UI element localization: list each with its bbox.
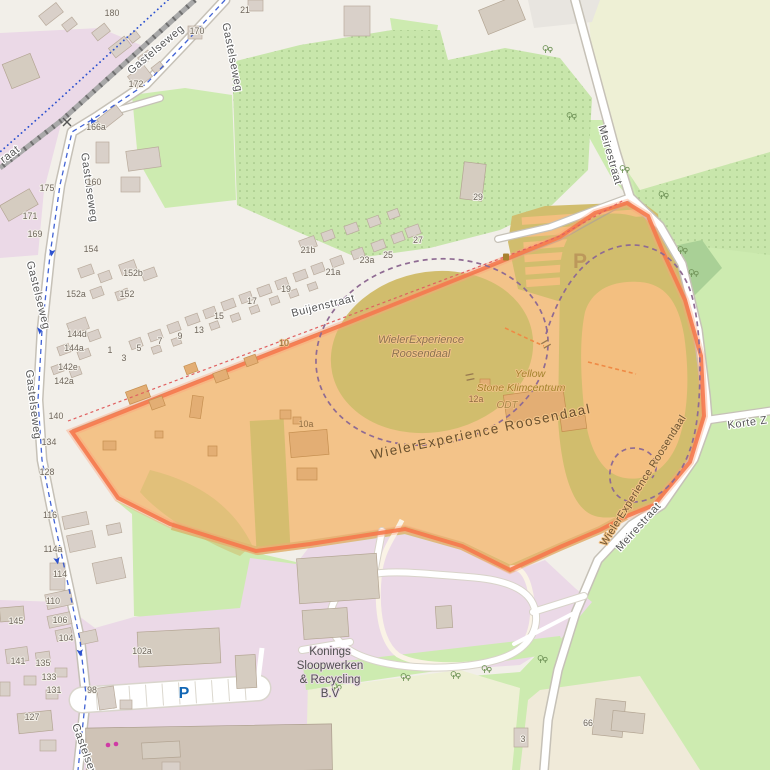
- house-number-label: 23a: [360, 255, 375, 265]
- house-number-label: 141: [11, 656, 26, 666]
- building: [235, 654, 257, 688]
- house-number-label: 152a: [66, 289, 86, 299]
- house-number-label: 144a: [64, 343, 84, 353]
- house-number-label: 180: [105, 8, 120, 18]
- house-number-label: 21a: [326, 267, 341, 277]
- building: [86, 724, 333, 770]
- map-svg[interactable]: GastelsewegGastelsewegGastelsewegGastels…: [0, 0, 770, 770]
- house-number-label: 142e: [58, 362, 78, 372]
- building: [208, 446, 217, 456]
- house-number-label: 5: [137, 343, 142, 353]
- house-number-label: 128: [40, 467, 55, 477]
- house-number-label: 135: [36, 658, 51, 668]
- house-number-label: 21b: [301, 245, 316, 255]
- house-number-label: 3: [521, 734, 526, 744]
- building: [248, 0, 263, 11]
- house-number-label: 66: [583, 718, 593, 728]
- house-number-label: 145: [9, 616, 24, 626]
- house-number-label: 10a: [299, 419, 314, 429]
- house-number-label: 9: [178, 331, 183, 341]
- house-number-label: 29: [473, 192, 483, 202]
- building: [297, 553, 380, 603]
- building: [103, 441, 116, 450]
- house-number-label: 3: [122, 353, 127, 363]
- house-number-label: 114a: [44, 544, 63, 554]
- building: [40, 740, 56, 751]
- house-number-label: 134: [42, 437, 57, 447]
- building: [126, 147, 161, 171]
- poi-name-label: Stone Klimcentrum: [477, 382, 566, 394]
- house-number-label: 133: [42, 672, 57, 682]
- poi-name-label: Yellow: [515, 368, 547, 380]
- map-canvas[interactable]: GastelsewegGastelsewegGastelsewegGastels…: [0, 0, 770, 770]
- house-number-label: 1: [108, 345, 113, 355]
- house-number-label: 171: [23, 211, 38, 221]
- building: [24, 676, 36, 685]
- house-number-label: 114: [53, 569, 67, 579]
- building: [297, 468, 317, 480]
- house-number-label: 154: [84, 244, 99, 254]
- building: [142, 741, 181, 759]
- house-number-label: 160: [87, 177, 102, 187]
- industrial-name-label: B.V: [321, 688, 340, 700]
- building: [435, 605, 452, 628]
- east-ring-inner: [581, 282, 687, 479]
- shop-dot-icon: [114, 742, 119, 747]
- house-number-label: 19: [281, 284, 291, 294]
- house-number-label: 21: [240, 5, 250, 15]
- house-number-label: 25: [383, 250, 393, 260]
- industrial-name-label: Sloopwerken: [297, 660, 363, 672]
- house-number-label: 13: [194, 325, 204, 335]
- khaki-column: [250, 419, 291, 547]
- house-number-label: 10: [279, 338, 289, 348]
- house-number-label: 17: [247, 296, 257, 306]
- poi-name-label: ODT: [496, 400, 518, 411]
- building: [120, 700, 132, 709]
- house-number-label: 116: [43, 510, 57, 520]
- building: [96, 142, 109, 163]
- house-number-label: 15: [214, 311, 224, 321]
- house-number-label: 172: [129, 79, 144, 89]
- house-number-label: 104: [59, 633, 74, 643]
- house-number-label: 152b: [123, 268, 143, 278]
- house-number-label: 175: [40, 183, 55, 193]
- area-name-label: Roosendaal: [392, 348, 451, 360]
- house-number-label: 140: [49, 411, 64, 421]
- house-number-label: 142a: [54, 376, 74, 386]
- building: [97, 686, 117, 710]
- building: [611, 710, 645, 733]
- house-number-label: 27: [413, 235, 423, 245]
- parking-label: P: [179, 685, 190, 702]
- industrial-name-label: Konings: [309, 646, 351, 658]
- house-number-label: 12a: [469, 394, 484, 404]
- house-number-label: 166a: [86, 122, 106, 132]
- house-number-label: 152: [120, 289, 135, 299]
- house-number-label: 7: [158, 336, 163, 346]
- building: [121, 177, 140, 192]
- house-number-label: 98: [87, 685, 97, 695]
- house-number-label: 144d: [67, 329, 87, 339]
- house-number-label: 102a: [132, 646, 152, 656]
- building: [302, 607, 349, 639]
- area-name-label: WielerExperience: [378, 334, 464, 346]
- house-number-label: 106: [53, 615, 68, 625]
- building: [344, 6, 370, 36]
- building: [289, 429, 329, 457]
- shop-dot-icon: [106, 743, 111, 748]
- parking-label: P: [573, 250, 587, 273]
- building: [280, 410, 291, 419]
- building: [155, 431, 163, 438]
- house-number-label: 169: [28, 229, 43, 239]
- amenity-icon: [503, 254, 509, 261]
- industrial-name-label: & Recycling: [300, 674, 361, 686]
- building: [162, 762, 180, 770]
- house-number-label: 110: [46, 596, 60, 606]
- house-number-label: 131: [47, 685, 62, 695]
- building: [0, 682, 10, 696]
- house-number-label: 170: [190, 26, 205, 36]
- building: [55, 668, 67, 677]
- house-number-label: 127: [25, 712, 40, 722]
